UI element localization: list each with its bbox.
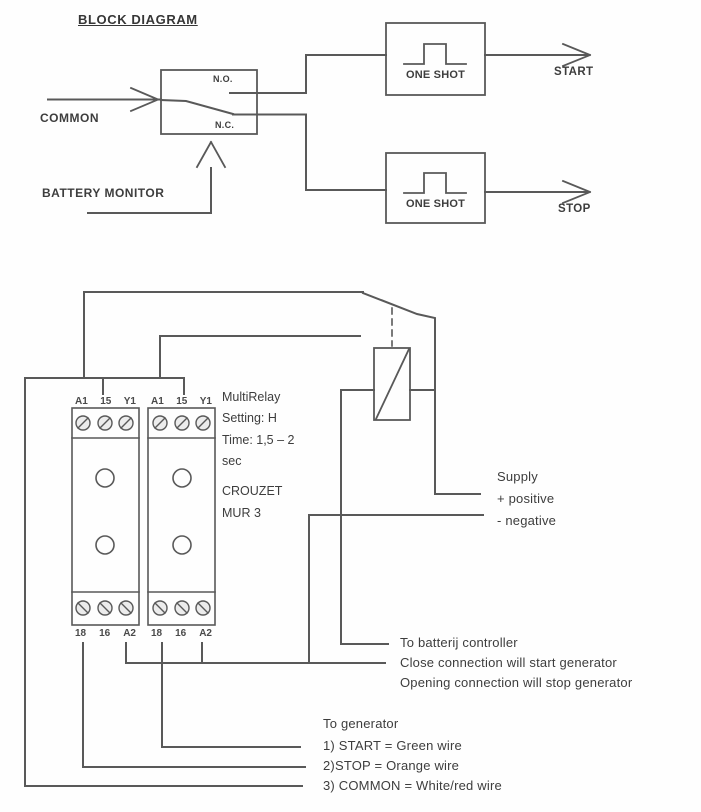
- terminal-label: Y1: [124, 396, 136, 407]
- supply-label: Supply: [497, 470, 538, 485]
- module-info-time-unit: sec: [222, 454, 241, 468]
- nc-contact-label: N.C.: [215, 120, 234, 130]
- wire-to-oneshot-start: [306, 55, 386, 93]
- no-contact-label: N.O.: [213, 74, 233, 84]
- generator-stop-wire-label: 2)STOP = Orange wire: [323, 759, 459, 774]
- wire-coil-to-battery-controller: [341, 390, 388, 644]
- relay-module-1: [72, 408, 139, 625]
- module2-bottom-terminals: 18 16 A2: [148, 628, 215, 639]
- terminal-label: 18: [75, 628, 86, 639]
- terminal-label: A2: [123, 628, 136, 639]
- schematic-canvas: BLOCK DIAGRAM N.O. N.C. COMMON BATTERY M…: [0, 0, 701, 812]
- page-title: BLOCK DIAGRAM: [78, 13, 198, 28]
- module-info-setting: Setting: H: [222, 411, 277, 425]
- module-hole-icon: [173, 536, 191, 554]
- module-hole-icon: [173, 469, 191, 487]
- generator-common-wire-label: 3) COMMON = White/red wire: [323, 779, 502, 794]
- terminal-screw-icon: [76, 416, 133, 615]
- terminal-screw-icon: [153, 416, 210, 615]
- pulse-icon: [404, 173, 466, 193]
- common-input-label: COMMON: [40, 112, 99, 126]
- terminal-label: 16: [99, 628, 110, 639]
- wire-start-green: [162, 643, 300, 747]
- module-hole-icon: [96, 536, 114, 554]
- wire-feed-2: [160, 336, 360, 378]
- wire-stop-orange: [83, 643, 305, 767]
- supply-negative-label: - negative: [497, 514, 556, 529]
- stop-output-label: STOP: [558, 203, 591, 216]
- one-shot-stop-label: ONE SHOT: [386, 198, 485, 211]
- battery-controller-close-note: Close connection will start generator: [400, 656, 617, 671]
- start-output-label: START: [554, 66, 593, 79]
- switch-and-supply-positive-wire: [363, 293, 480, 494]
- module-info-brand: CROUZET: [222, 484, 282, 498]
- one-shot-start-label: ONE SHOT: [386, 69, 485, 82]
- wire-to-oneshot-stop: [306, 115, 386, 191]
- terminal-label: A1: [75, 396, 88, 407]
- supply-positive-label: + positive: [497, 492, 554, 507]
- a2-bus-wire: [126, 643, 385, 663]
- module2-top-terminals: A1 15 Y1: [148, 396, 215, 407]
- one-shot-stop-box: [386, 153, 485, 223]
- battery-controller-label: To batterij controller: [400, 636, 518, 651]
- module-info-name: MultiRelay: [222, 390, 280, 404]
- terminal-label: A1: [151, 396, 164, 407]
- relay-coil-diagonal: [376, 349, 409, 419]
- battery-controller-open-note: Opening connection will stop generator: [400, 676, 632, 691]
- one-shot-start-box: [386, 23, 485, 95]
- relay-module-2: [148, 408, 215, 625]
- generator-start-wire-label: 1) START = Green wire: [323, 739, 462, 754]
- terminal-label: A2: [199, 628, 212, 639]
- battery-monitor-label: BATTERY MONITOR: [42, 187, 164, 201]
- switch-blade: [161, 100, 233, 114]
- relay-contact-box: [161, 70, 257, 134]
- module-info-time: Time: 1,5 – 2: [222, 433, 295, 447]
- pulse-icon: [404, 44, 466, 64]
- module-hole-icon: [96, 469, 114, 487]
- terminal-label: 15: [176, 396, 187, 407]
- terminal-label: 18: [151, 628, 162, 639]
- terminal-label: 15: [100, 396, 111, 407]
- module1-bottom-terminals: 18 16 A2: [72, 628, 139, 639]
- battery-monitor-arrowhead-icon: [197, 142, 225, 167]
- terminal-label: Y1: [200, 396, 212, 407]
- module-info-model: MUR 3: [222, 506, 261, 520]
- terminal-label: 16: [175, 628, 186, 639]
- module1-top-terminals: A1 15 Y1: [72, 396, 139, 407]
- generator-label: To generator: [323, 717, 398, 732]
